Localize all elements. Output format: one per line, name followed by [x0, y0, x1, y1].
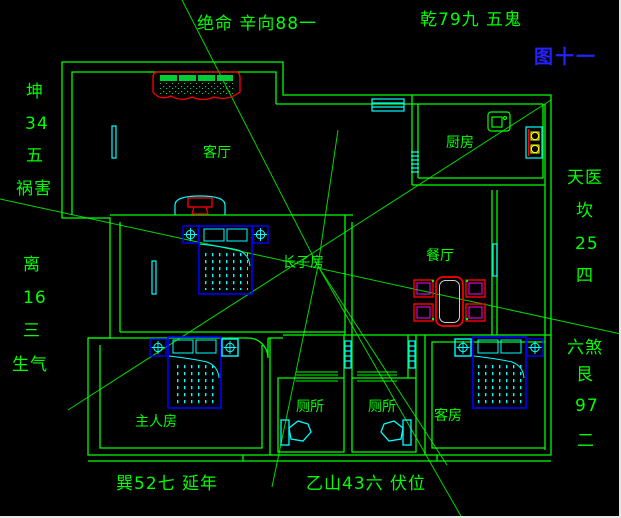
annotation-top-left: 绝命 辛向88一 — [197, 16, 317, 33]
chair — [414, 280, 434, 297]
nightstand — [183, 226, 198, 243]
window-bedroom-left — [152, 261, 156, 294]
dining-set — [414, 277, 485, 326]
chair — [414, 304, 434, 321]
annotation-gen: 艮 — [576, 367, 594, 384]
annotation-bottom-center: 乙山43六 伏位 — [306, 476, 426, 493]
nightstand — [253, 226, 268, 243]
annotation-97: 97 — [575, 398, 599, 415]
annotation-tianyi: 天医 — [567, 170, 603, 187]
toilet-fixture-right — [381, 420, 411, 445]
vent-hatches — [296, 372, 397, 381]
room-label-toilet-right: 厕所 — [368, 400, 396, 414]
bed-master — [150, 337, 238, 408]
annotation-34: 34 — [25, 116, 49, 133]
window-top — [372, 99, 404, 111]
stove — [526, 127, 542, 158]
window-toilet-wall-right — [409, 341, 415, 368]
bed-guest — [455, 337, 543, 408]
annotation-san: 三 — [23, 323, 41, 340]
annotation-bottom-left: 巽52七 延年 — [116, 476, 218, 493]
tv-cabinet — [175, 196, 225, 215]
annotation-shengqi: 生气 — [12, 357, 48, 374]
room-label-guest-room: 客房 — [434, 409, 462, 423]
window-toilet-wall-left — [345, 341, 351, 368]
figure-label: 图十一 — [534, 48, 597, 67]
room-label-dining-room: 餐厅 — [426, 249, 454, 263]
windows — [112, 99, 497, 368]
annotation-huohai: 祸害 — [16, 181, 52, 198]
room-label-toilet-left: 厕所 — [296, 400, 324, 414]
room-label-eldest-son: 长子房 — [282, 256, 324, 270]
annotation-kan: 坎 — [576, 203, 594, 220]
annotation-liusha: 六煞 — [567, 340, 603, 357]
annotation-si: 四 — [576, 268, 594, 285]
annotation-wu: 五 — [26, 148, 44, 165]
annotation-li: 离 — [23, 257, 41, 274]
window-living-left — [112, 126, 116, 158]
room-label-living-room: 客厅 — [203, 146, 231, 160]
annotation-25: 25 — [575, 236, 599, 253]
sofa — [153, 72, 240, 100]
nightstand — [222, 339, 238, 356]
door-arc — [248, 338, 268, 358]
chair — [466, 304, 485, 321]
nightstand — [150, 339, 166, 356]
chair — [466, 280, 485, 297]
annotation-top-right: 乾79九 五鬼 — [420, 12, 522, 29]
cad-floorplan-screen: 绝命 辛向88一 乾79九 五鬼 图十一 坤 34 五 祸害 离 16 三 生气… — [0, 0, 621, 518]
annotation-er: 二 — [577, 433, 595, 450]
room-label-kitchen: 厨房 — [446, 136, 474, 150]
bed-eldest-son — [183, 226, 268, 294]
room-label-master-bedroom: 主人房 — [135, 415, 177, 429]
annotation-16: 16 — [23, 290, 47, 307]
annotation-kun: 坤 — [26, 84, 44, 101]
